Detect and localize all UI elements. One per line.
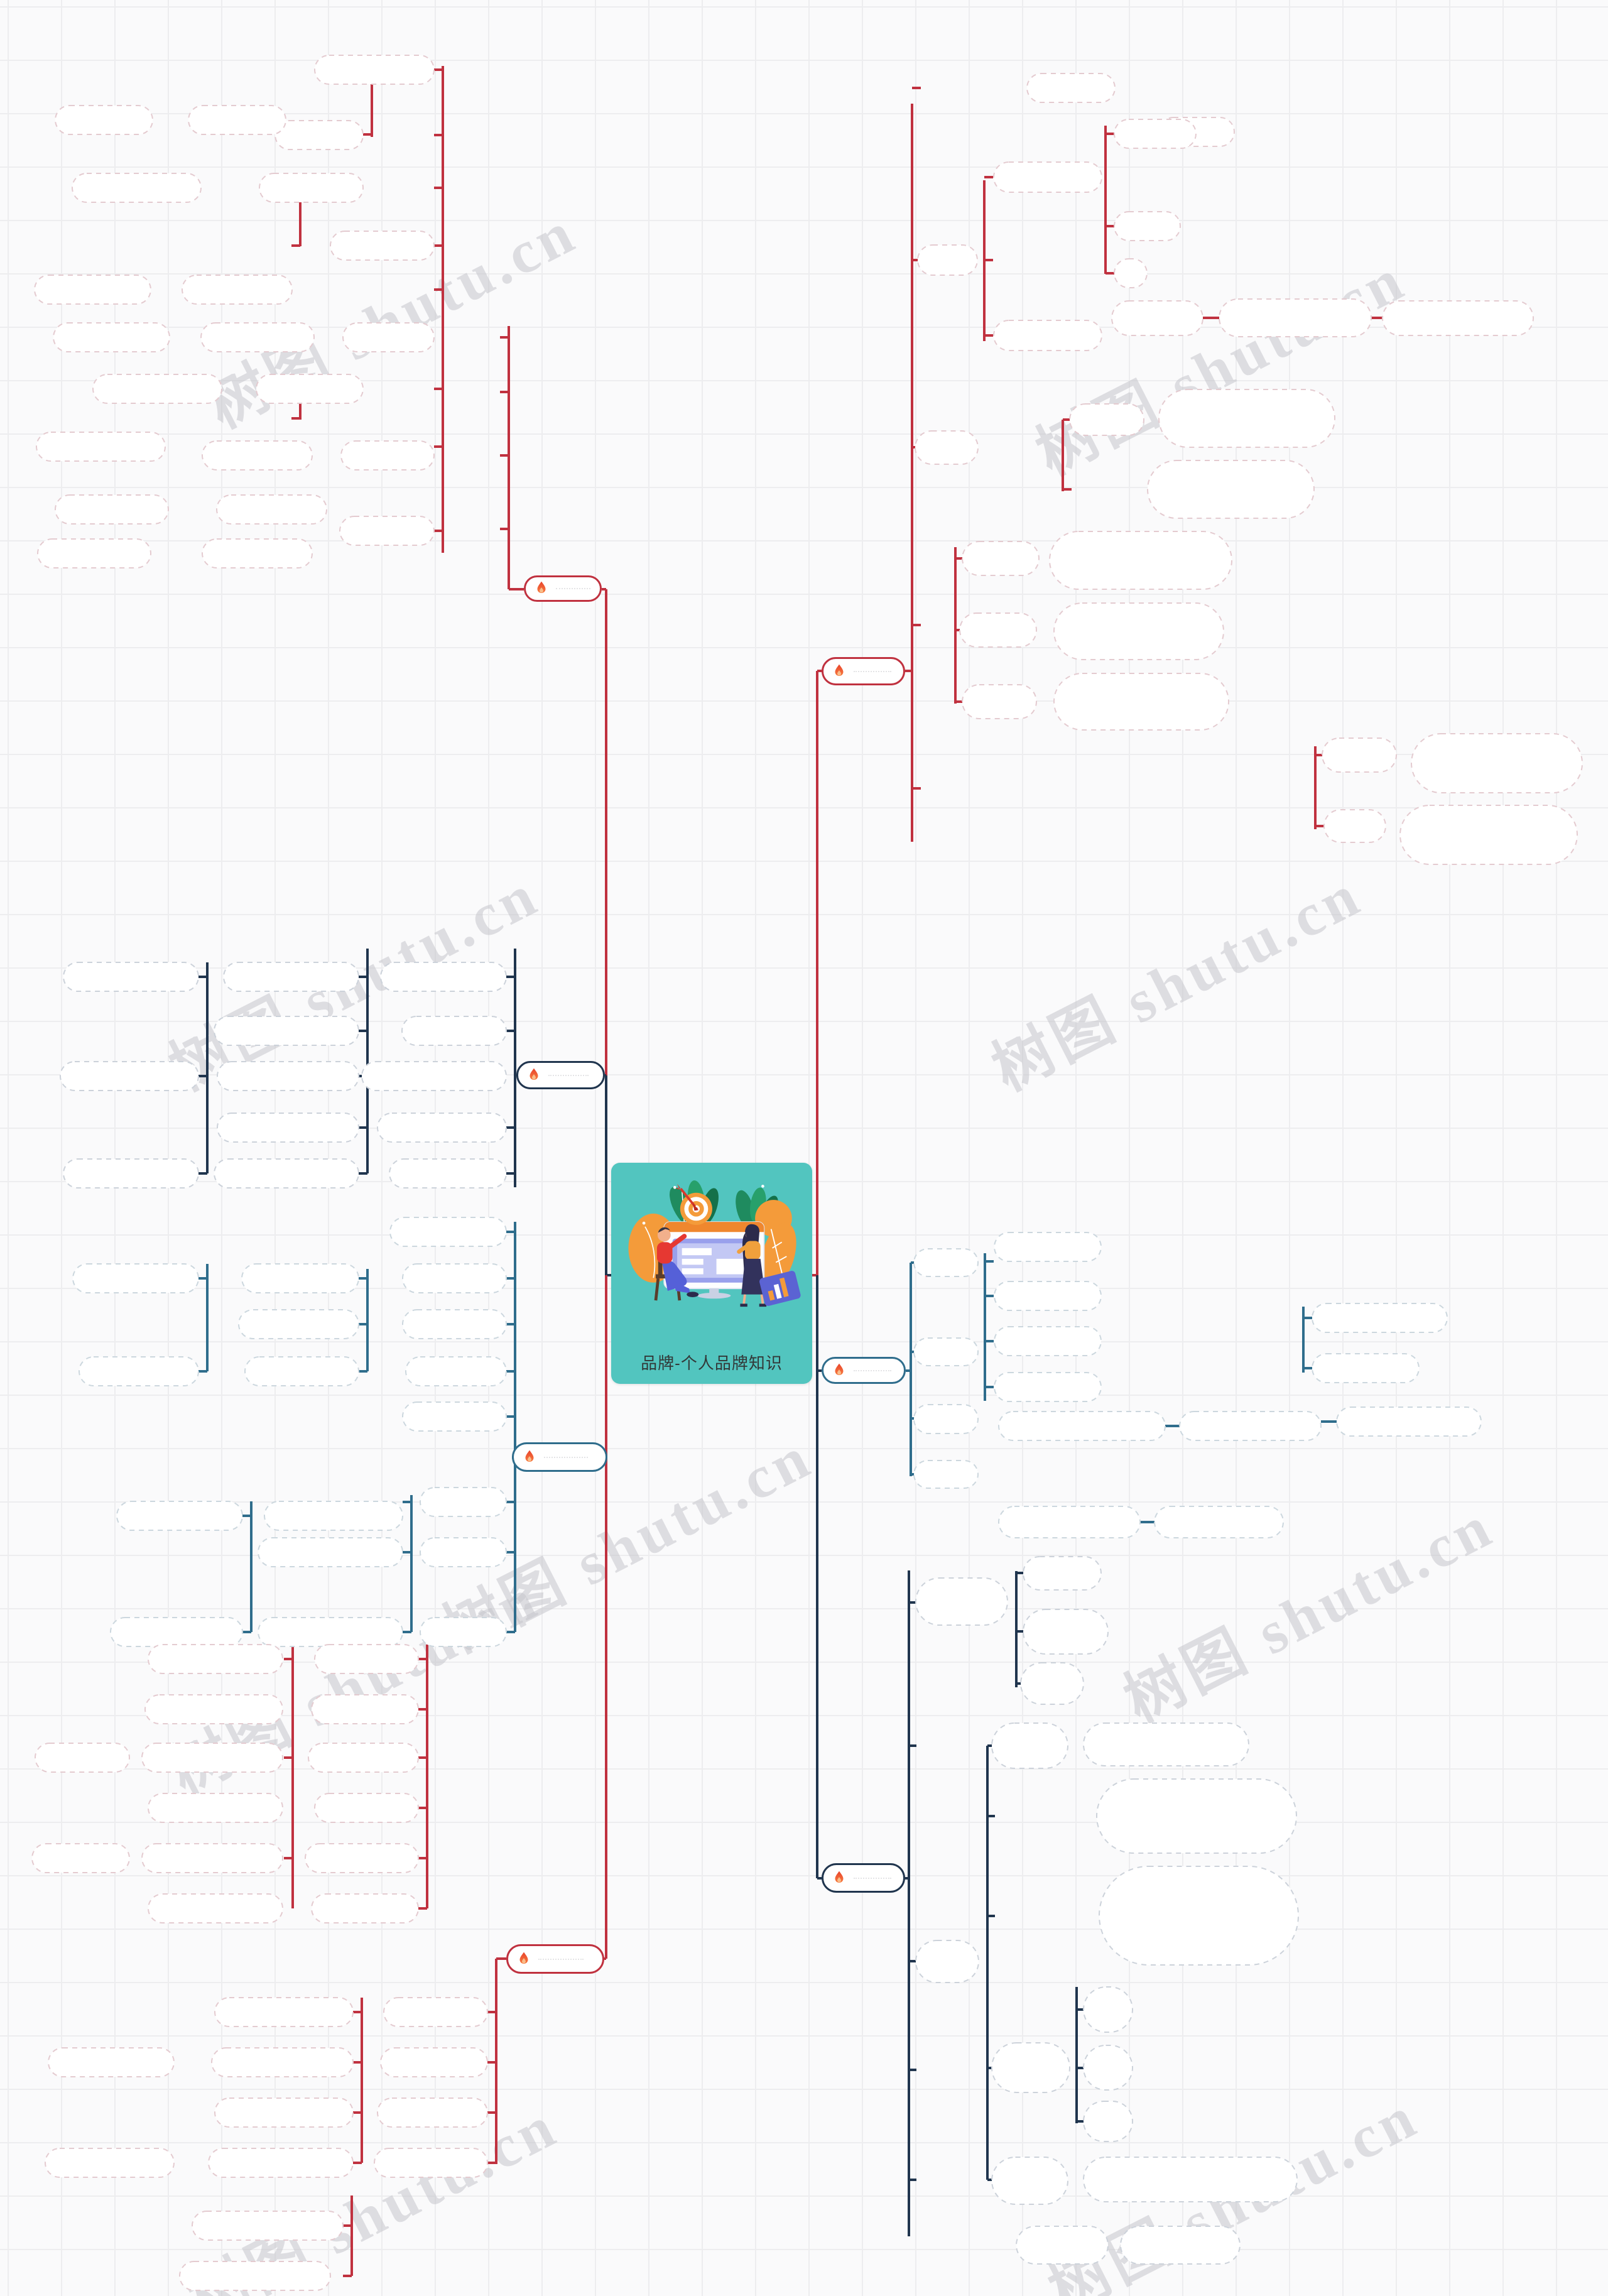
hidden-text-trace [854,671,891,672]
locked-node [63,962,198,991]
locked-node [420,1618,506,1646]
locked-node [264,1501,403,1530]
locked-node [308,1743,418,1772]
locked-node [340,516,434,545]
locked-node [73,1264,198,1293]
flame-icon [831,1363,847,1379]
locked-node [36,432,165,461]
locked-node [1114,119,1196,148]
locked-node [916,1940,979,1983]
locked-node [38,539,151,568]
locked-node [420,1488,506,1516]
locked-node [212,2048,353,2077]
locked-node [315,55,434,84]
locked-node [1023,1609,1108,1654]
connector-layer [0,0,1608,2296]
locked-node [63,1159,198,1188]
locked-node [215,2098,353,2127]
locked-node [217,1062,359,1091]
locked-node [312,1695,418,1724]
locked-node [148,1793,283,1822]
locked-node [202,441,312,470]
branch-topic-node[interactable] [822,1863,905,1893]
locked-node [389,1159,506,1188]
locked-node [215,1998,353,2027]
locked-node [994,1232,1101,1261]
hidden-text-trace [548,1075,589,1076]
locked-node [117,1501,242,1530]
locked-node [343,323,434,352]
branch-topic-node[interactable] [506,1944,604,1974]
locked-node [32,1844,129,1873]
locked-node [1312,1354,1419,1383]
locked-node [145,1695,283,1724]
locked-node [1180,1412,1321,1440]
locked-node [1050,531,1232,589]
locked-node [224,962,359,991]
locked-node [914,1461,978,1488]
locked-node [48,2048,174,2077]
locked-node [217,1113,359,1142]
locked-node [403,1264,506,1293]
locked-node [374,2148,487,2177]
locked-node [1054,603,1224,660]
flame-icon [831,663,847,680]
locked-node [315,1793,418,1822]
locked-node [1099,1866,1298,1965]
locked-node [406,1357,506,1386]
central-illustration [622,1172,801,1321]
locked-node [188,106,286,134]
locked-node [142,1844,283,1873]
locked-node [258,1538,403,1567]
locked-node [1337,1407,1481,1436]
locked-node [1097,1779,1296,1853]
hidden-text-trace [854,1370,891,1371]
branch-topic-node[interactable] [524,575,602,602]
locked-node [914,1338,978,1366]
branch-topic-node[interactable] [822,1357,906,1384]
locked-node [1084,1987,1133,2032]
locked-node [192,2211,343,2240]
locked-node [239,1310,359,1339]
locked-node [341,441,434,470]
locked-node [148,1894,283,1923]
central-topic-title: 品牌-个人品牌知识 [611,1351,812,1374]
locked-node [1400,805,1577,864]
locked-node [994,162,1102,192]
locked-node [992,2043,1070,2092]
locked-node [35,1743,129,1772]
locked-node [72,173,201,202]
locked-node [245,1357,359,1386]
locked-node [916,1578,1008,1625]
branch-topic-node[interactable] [512,1442,607,1472]
locked-node [182,275,292,304]
locked-node [402,1016,506,1045]
locked-node [994,1373,1101,1401]
locked-node [918,245,977,275]
locked-node [259,173,363,202]
locked-node [1084,2157,1297,2202]
locked-node [148,1645,283,1673]
locked-node [60,1062,198,1091]
locked-node [312,1894,418,1923]
locked-node [142,1743,283,1772]
locked-node [1070,404,1144,435]
locked-node [1159,389,1335,447]
locked-node [1148,460,1314,518]
locked-node [992,1723,1068,1768]
locked-node [1324,810,1386,842]
locked-node [914,1249,978,1276]
locked-node [994,1327,1101,1356]
locked-node [330,231,434,260]
locked-node [1322,738,1396,772]
locked-node [209,2148,353,2177]
flame-icon [831,1870,847,1886]
flame-icon [526,1067,542,1084]
branch-topic-node[interactable] [516,1061,605,1089]
locked-node [1114,212,1180,241]
locked-node [45,2148,174,2177]
locked-node [1312,1303,1447,1332]
locked-node [1121,2226,1240,2264]
locked-node [403,1402,506,1431]
locked-node [999,1412,1165,1440]
locked-node [55,106,153,134]
locked-node [1084,2101,1133,2141]
locked-node [914,1405,978,1434]
locked-node [1016,2226,1108,2264]
locked-node [93,374,222,403]
locked-node [384,1998,487,2027]
locked-node [1383,301,1533,335]
locked-node [305,1844,418,1873]
locked-node [1021,1663,1084,1704]
locked-node [1112,301,1203,335]
locked-node [381,962,506,991]
locked-node [35,275,151,304]
locked-node [111,1618,242,1646]
locked-node [1054,673,1229,730]
locked-node [390,1217,506,1246]
flame-icon [516,1951,532,1967]
locked-node [960,613,1036,647]
locked-node [275,121,363,150]
locked-node [962,685,1036,719]
locked-node [315,1645,418,1673]
locked-node [403,1310,506,1339]
locked-node [214,1016,359,1045]
locked-node [1084,1723,1249,1766]
locked-node [1114,259,1147,288]
flame-icon [521,1449,538,1466]
locked-node [362,1062,506,1091]
locked-node [992,2157,1068,2204]
hidden-text-trace [538,1959,584,1960]
locked-node [1023,1557,1101,1590]
locked-node [256,374,363,403]
branch-topic-node[interactable] [822,657,905,685]
locked-node [53,323,170,352]
locked-node [381,2048,487,2077]
locked-node [180,2261,330,2290]
hidden-text-trace [544,1457,588,1458]
locked-node [202,539,312,568]
locked-node [258,1618,403,1646]
central-topic-node[interactable]: 品牌-个人品牌知识 [611,1163,812,1384]
hidden-text-trace [854,1878,891,1879]
locked-node [1084,2045,1133,2090]
locked-node [217,495,327,524]
locked-node [994,1281,1101,1310]
locked-node [915,431,978,464]
locked-node [962,541,1039,575]
locked-node [1027,73,1115,102]
locked-node [1154,1506,1283,1538]
mindmap-canvas: 树图 shutu.cn树图 shutu.cn树图 shutu.cn树图 shut… [0,0,1608,2296]
locked-node [242,1264,359,1293]
locked-node [1219,299,1371,337]
locked-node [378,2098,487,2127]
locked-node [999,1506,1140,1538]
locked-node [420,1538,506,1567]
locked-node [55,495,168,524]
locked-node [201,323,314,352]
flame-icon [533,580,550,597]
hidden-text-trace [556,588,590,589]
locked-node [378,1113,506,1142]
locked-node [79,1357,198,1386]
locked-node [214,1159,359,1188]
locked-node [994,320,1102,351]
locked-node [1411,734,1582,793]
